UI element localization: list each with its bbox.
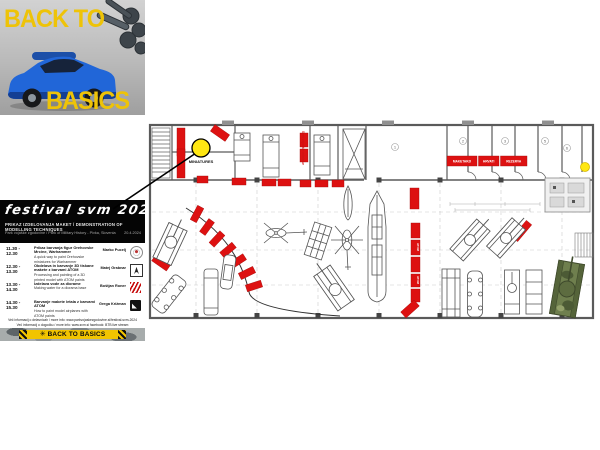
poster-photo: BACK TO BASICS	[0, 0, 145, 115]
event-date: 20.4.2024	[124, 231, 141, 235]
graffiti-logo-icon	[130, 282, 141, 293]
slot-time: 14.30 - 15.30	[6, 300, 32, 310]
helicopter-icon	[331, 226, 363, 270]
armored-vehicle-icon	[526, 270, 542, 314]
hall-outline	[150, 125, 593, 318]
stairs-right	[575, 233, 593, 257]
secondary-marker	[581, 163, 590, 172]
truck-icon	[234, 133, 250, 161]
table-label: REZERVA	[506, 160, 522, 164]
slot-presenter: Marko Pucelj	[96, 248, 126, 252]
slot-time: 12.30 - 13.30	[6, 264, 32, 274]
event-venue: Park vojaške zgodovine / Park of Militar…	[5, 231, 116, 235]
tank-icon	[153, 215, 191, 265]
room-number: 6	[566, 146, 569, 151]
ship-icon	[368, 191, 386, 302]
room-numbers: 1 2 3 5 6	[392, 138, 571, 152]
boat-icon	[344, 186, 352, 220]
svm-room-label: Svet vojaških miniatur	[301, 131, 305, 166]
table-label: MAKETARJI	[453, 160, 471, 164]
schedule-row: 13.30 - 14.30 Izdelava vode za diorame M…	[0, 280, 145, 297]
tank-icon	[309, 258, 355, 311]
brand-banner: ✳ BACK TO BASICS	[0, 328, 145, 341]
tank-icon	[450, 213, 495, 261]
back-to-headline: BACK TO	[4, 8, 104, 31]
truck-icon	[314, 135, 330, 175]
slot-title-sl: Barvanje makete letala z barvami ATOM	[34, 300, 96, 310]
apc-icon	[150, 273, 188, 315]
brand-strip: ✳ BACK TO BASICS	[19, 330, 126, 339]
footer-info-2: Več informacij o dogodku / more info: ww…	[0, 323, 145, 327]
dimension-lines	[450, 202, 540, 212]
box-truck-icon	[343, 129, 365, 179]
crest-logo-icon	[130, 246, 143, 259]
interior-walls	[150, 125, 593, 180]
schedule-row: 11.30 - 12.30 Prikaz barvanja figur Oreh…	[0, 244, 145, 261]
room-number: 1	[394, 145, 397, 150]
grid-lines	[152, 183, 591, 315]
route-curve	[186, 208, 340, 316]
hazard-stripes-icon	[19, 330, 27, 339]
stairs-left	[152, 128, 170, 178]
strip-label: ATOM	[416, 276, 420, 285]
slot-presenter: Grega Križman	[96, 302, 126, 306]
slot-title-sl: Prikaz barvanja figur Orehovske Mrcine, …	[34, 246, 96, 256]
slot-time: 11.30 - 12.30	[6, 246, 32, 256]
radar-truck-icon	[304, 222, 332, 260]
brand-name: BACK TO BASICS	[48, 331, 106, 338]
miniatures-marker	[192, 139, 210, 157]
car-icon	[220, 254, 237, 289]
slot-presenter: Boštjan Roner	[96, 284, 126, 288]
slot-presenter: Matej Grabnar	[96, 266, 126, 270]
hazard-stripes-icon	[118, 330, 126, 339]
title-band: festival svm 2024 PRIKAZ IZDELOVANJA MAK…	[0, 200, 145, 243]
table-label: HRVATI	[483, 160, 494, 164]
exhibit-tables: MAKETARJI HRVATI REZERVA ATOM ATOM	[152, 125, 532, 318]
truck-icon	[442, 269, 460, 317]
armored-vehicle-icon	[505, 270, 520, 314]
strip-label: ATOM	[416, 243, 420, 252]
miniatures-label: MINIATURES	[189, 159, 214, 164]
tank-icon	[487, 212, 531, 258]
camo-tank-icon	[550, 254, 586, 318]
room-number: 2	[462, 139, 465, 144]
schedule-row: 14.30 - 15.30 Barvanje makete letala z b…	[0, 298, 145, 315]
van-icon	[204, 269, 218, 315]
slot-time: 13.30 - 14.30	[6, 282, 32, 292]
room-number: 5	[544, 139, 547, 144]
black-logo-icon	[130, 300, 141, 311]
truck-icon	[263, 135, 279, 177]
vehicle-drawings	[150, 129, 585, 318]
flyer-canvas: BACK TO BASICS festival svm 2024 PRIKAZ …	[0, 0, 600, 450]
wall-vents	[222, 121, 554, 126]
footer-info-1: Več informacij o delavnicah / more info:…	[0, 318, 145, 322]
schedule: 11.30 - 12.30 Prikaz barvanja figur Oreh…	[0, 243, 145, 317]
room-number: 3	[504, 139, 507, 144]
event-title: festival svm 2024	[4, 203, 162, 218]
schedule-row: 12.30 - 13.30 Obdelava in barvanje 3D ti…	[0, 262, 145, 279]
basics-headline: BASICS	[46, 90, 129, 113]
helicopter-icon	[264, 223, 307, 243]
wheel-icon: ✳	[40, 331, 46, 338]
slot-title-en: Making water for a diorama base	[34, 286, 96, 291]
columns	[194, 178, 565, 319]
slot-title-sl: Obdelava in barvanje 3D tiskane makete z…	[34, 264, 96, 274]
figure-logo-icon	[130, 264, 143, 277]
apc-icon	[468, 271, 483, 317]
machine-room	[545, 178, 590, 212]
